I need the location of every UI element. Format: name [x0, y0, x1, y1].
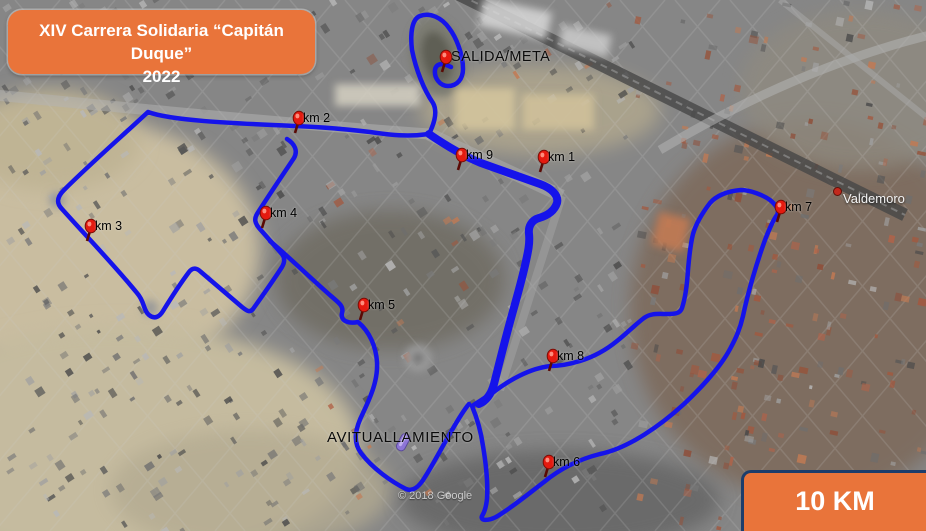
town-label: Valdemoro: [843, 191, 905, 206]
label-overlay: SALIDA/META AVITUALLAMIENTO Valdemoro © …: [0, 0, 926, 531]
distance-box: 10 KM: [741, 470, 926, 531]
km-marker-label: km 5: [368, 298, 395, 312]
aid-station-label: AVITUALLAMIENTO: [327, 429, 474, 446]
start-finish-label: SALIDA/META: [451, 49, 550, 65]
town-dot-icon: [833, 187, 842, 196]
map-canvas: SALIDA/META AVITUALLAMIENTO Valdemoro © …: [0, 0, 926, 531]
km-marker-label: km 1: [548, 150, 575, 164]
km-marker-label: km 9: [466, 148, 493, 162]
km-marker-label: km 7: [785, 200, 812, 214]
km-marker-label: km 2: [303, 111, 330, 125]
race-title-line2: 2022: [8, 65, 315, 88]
race-title-box: XIV Carrera Solidaria “Capitán Duque” 20…: [8, 10, 315, 74]
km-marker-label: km 4: [270, 206, 297, 220]
km-marker-label: km 3: [95, 219, 122, 233]
km-marker-label: km 6: [553, 455, 580, 469]
km-marker-label: km 8: [557, 349, 584, 363]
map-credit: © 2018 Google: [398, 490, 472, 502]
race-title-line1: XIV Carrera Solidaria “Capitán Duque”: [8, 19, 315, 65]
